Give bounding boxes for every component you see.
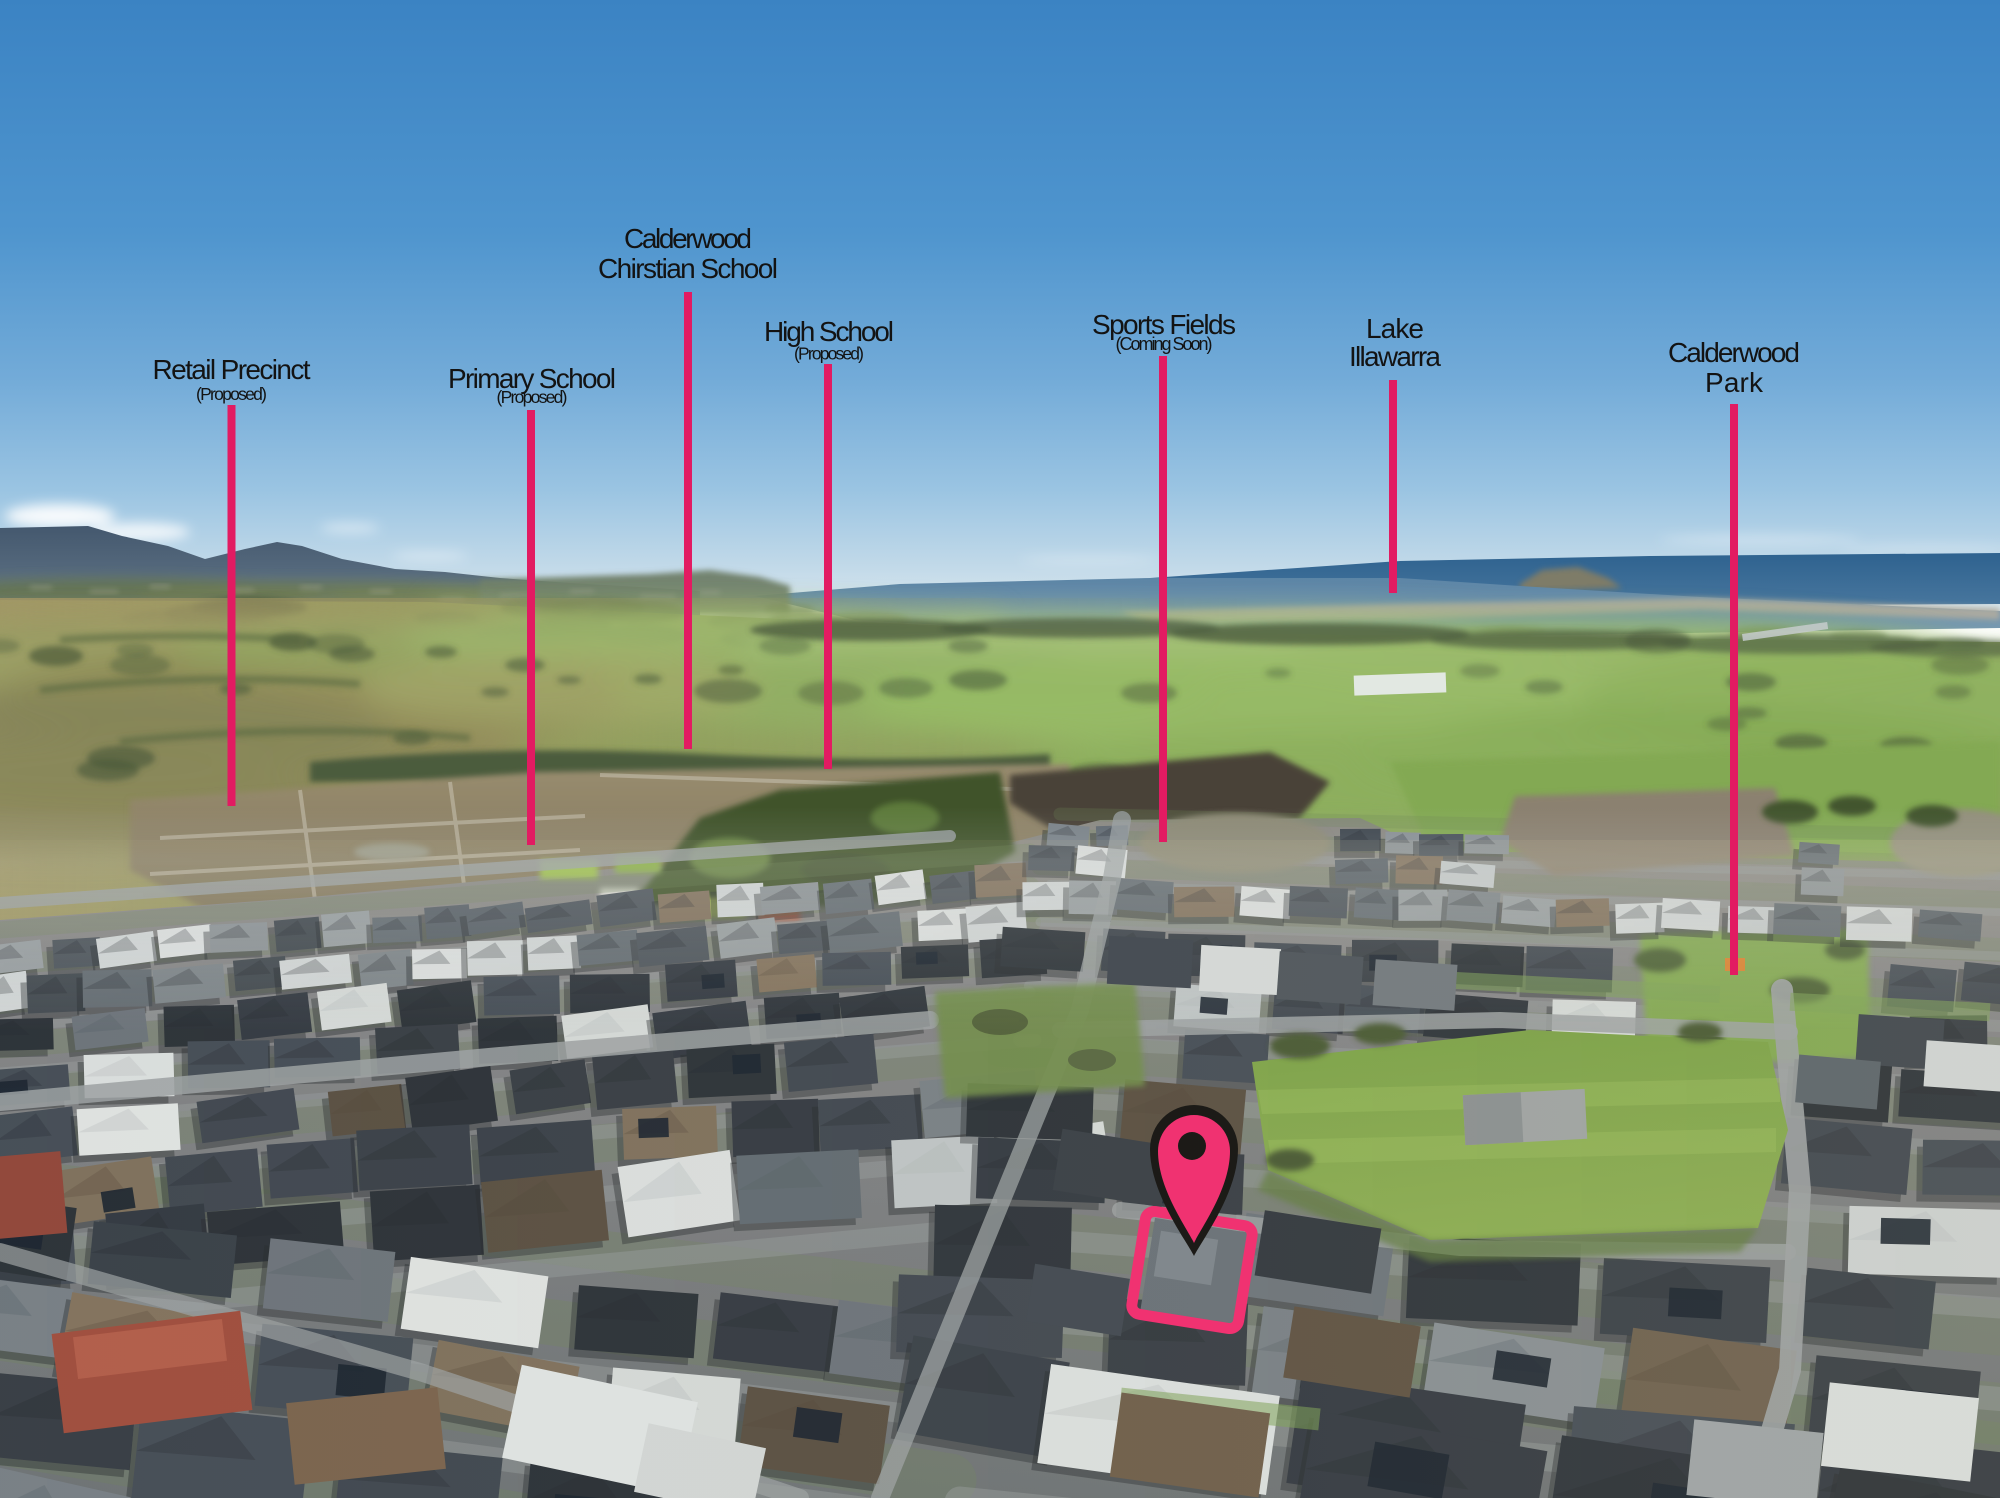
svg-text:Calderwood: Calderwood [1668, 337, 1800, 368]
svg-text:Calderwood: Calderwood [624, 223, 752, 254]
svg-text:(Coming Soon): (Coming Soon) [1116, 334, 1213, 354]
svg-text:(Proposed): (Proposed) [196, 384, 267, 404]
svg-text:Park: Park [1705, 367, 1764, 398]
svg-text:(Proposed): (Proposed) [794, 344, 864, 364]
svg-text:Illawarra: Illawarra [1349, 341, 1441, 372]
svg-text:Lake: Lake [1366, 313, 1424, 344]
svg-text:Retail Precinct: Retail Precinct [153, 354, 311, 385]
svg-text:(Proposed): (Proposed) [497, 387, 568, 407]
svg-text:Chirstian School: Chirstian School [598, 253, 778, 284]
svg-text:High School: High School [764, 316, 894, 347]
